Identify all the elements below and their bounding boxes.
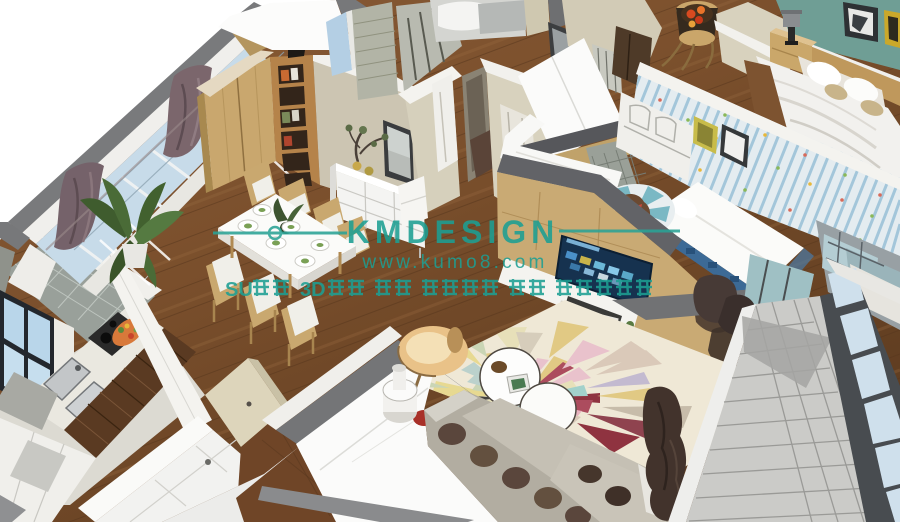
svg-text:KMDESIGN: KMDESIGN [347, 214, 559, 250]
svg-text:SU: SU [225, 279, 253, 301]
svg-text:3D: 3D [300, 279, 326, 301]
svg-text:www.kumo8.com: www.kumo8.com [361, 252, 547, 273]
